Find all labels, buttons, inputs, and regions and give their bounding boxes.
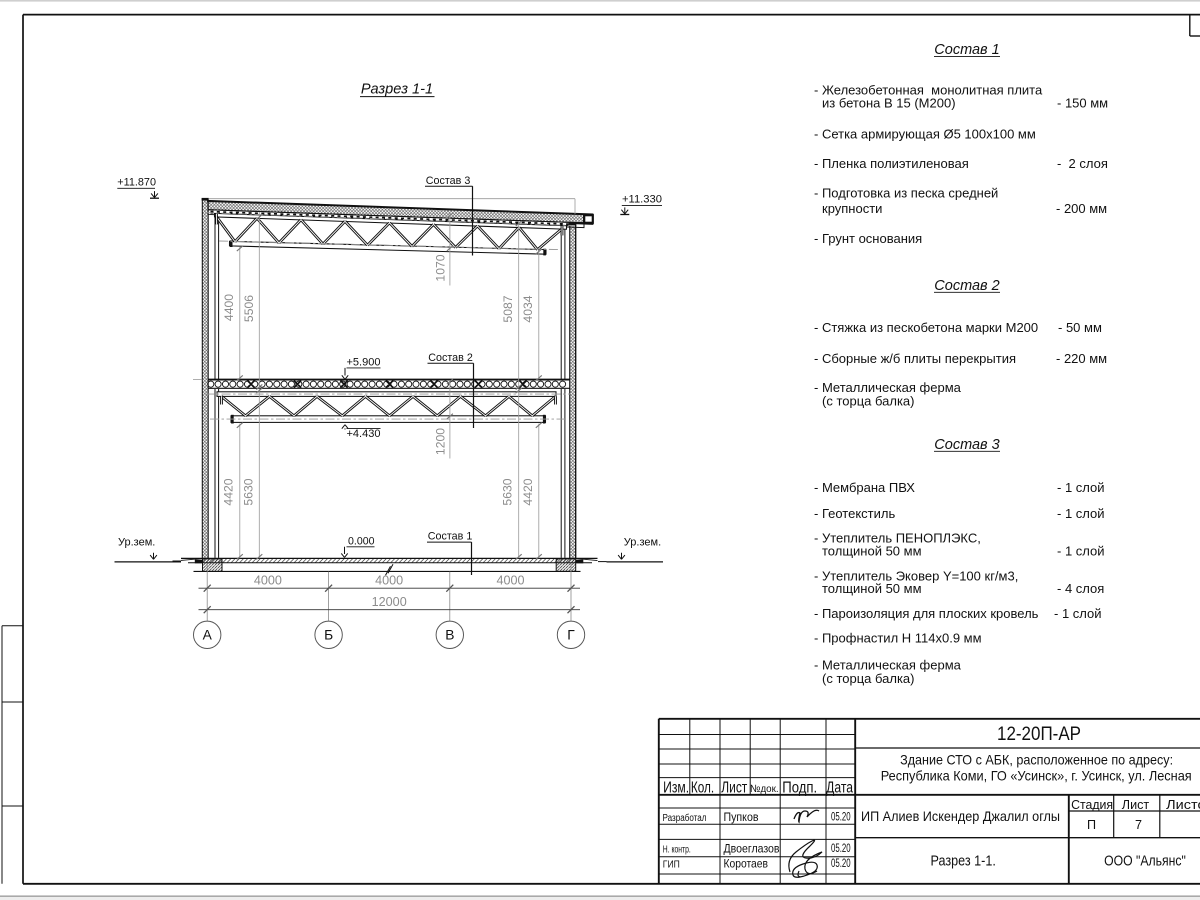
svg-text:(с торца балка): (с торца балка) — [822, 671, 915, 686]
svg-text:ГИП: ГИП — [663, 859, 680, 870]
svg-text:+5.900: +5.900 — [347, 357, 381, 369]
svg-text:4420: 4420 — [521, 478, 535, 505]
svg-text:толщиной 50 мм: толщиной 50 мм — [822, 581, 922, 596]
svg-text:Лист: Лист — [1122, 797, 1149, 812]
svg-text:В: В — [445, 627, 454, 642]
svg-text:Коротаев: Коротаев — [724, 856, 769, 870]
svg-text:Н. контр.: Н. контр. — [663, 844, 691, 855]
svg-text:12000: 12000 — [372, 595, 407, 609]
svg-text:- 1 слой: - 1 слой — [1057, 544, 1105, 559]
svg-text:Состав 1: Состав 1 — [428, 531, 473, 543]
svg-text:из бетона В 15 (М200): из бетона В 15 (М200) — [822, 96, 956, 111]
svg-text:7: 7 — [1135, 818, 1142, 832]
svg-text:5630: 5630 — [242, 478, 256, 505]
svg-text:Г: Г — [567, 627, 575, 642]
svg-text:05.20: 05.20 — [831, 856, 851, 870]
svg-text:- 220 мм: - 220 мм — [1056, 351, 1107, 366]
svg-text:1070: 1070 — [433, 254, 447, 281]
svg-text:Б: Б — [324, 627, 333, 642]
svg-text:+11.330: +11.330 — [622, 194, 662, 206]
svg-text:- 1 слой: - 1 слой — [1054, 606, 1102, 621]
svg-text:Изм.: Изм. — [663, 779, 689, 796]
svg-text:- Профнастил Н 114х0.9 мм: - Профнастил Н 114х0.9 мм — [814, 631, 982, 646]
svg-text:Ур.зем.: Ур.зем. — [624, 536, 661, 548]
svg-text:- Сборные ж/б плиты перекрытия: - Сборные ж/б плиты перекрытия — [814, 351, 1016, 366]
svg-text:Двоеглазов: Двоеглазов — [724, 841, 780, 855]
svg-text:4420: 4420 — [221, 478, 235, 505]
svg-text:4000: 4000 — [496, 573, 524, 587]
svg-text:5506: 5506 — [242, 295, 256, 322]
svg-text:0.000: 0.000 — [348, 536, 375, 548]
svg-text:Разрез 1-1: Разрез 1-1 — [361, 82, 433, 98]
svg-text:Стадия: Стадия — [1071, 797, 1113, 812]
svg-text:- Грунт основания: - Грунт основания — [814, 231, 922, 246]
svg-text:Состав 3: Состав 3 — [426, 175, 471, 187]
svg-text:- Геотекстиль: - Геотекстиль — [814, 506, 895, 521]
svg-text:№док.: №док. — [750, 783, 779, 795]
svg-text:Ур.зем.: Ур.зем. — [118, 536, 155, 548]
svg-text:Дата: Дата — [826, 779, 853, 796]
svg-text:- 2 слоя: - 2 слоя — [1057, 156, 1108, 171]
svg-text:4400: 4400 — [222, 294, 236, 321]
svg-text:- 1 слой: - 1 слой — [1057, 480, 1105, 495]
svg-text:+4.430: +4.430 — [347, 428, 381, 440]
svg-text:- 4 слоя: - 4 слоя — [1057, 581, 1104, 596]
svg-text:Здание СТО с АБК, расположенно: Здание СТО с АБК, расположенное по адрес… — [900, 752, 1173, 768]
svg-text:05.20: 05.20 — [831, 841, 851, 855]
svg-text:05.20: 05.20 — [831, 810, 851, 824]
svg-text:- 50 мм: - 50 мм — [1058, 320, 1102, 335]
svg-text:- Пленка полиэтиленовая: - Пленка полиэтиленовая — [814, 156, 969, 171]
svg-text:1200: 1200 — [433, 428, 447, 455]
svg-text:Состав 1: Состав 1 — [934, 42, 999, 58]
svg-text:4000: 4000 — [254, 573, 282, 587]
svg-text:ООО "Альянс": ООО "Альянс" — [1104, 854, 1186, 870]
svg-text:Состав 2: Состав 2 — [428, 352, 473, 364]
svg-text:- Стяжка из пескобетона марки: - Стяжка из пескобетона марки М200 — [814, 320, 1038, 335]
svg-text:Пупков: Пупков — [724, 810, 759, 824]
svg-text:Подп.: Подп. — [782, 779, 817, 796]
svg-text:Кол.: Кол. — [691, 779, 714, 796]
svg-text:Разрез 1-1.: Разрез 1-1. — [931, 854, 996, 870]
svg-text:+11.870: +11.870 — [117, 177, 156, 189]
svg-text:толщиной 50 мм: толщиной 50 мм — [822, 544, 922, 559]
svg-text:- Подготовка из песка средней: - Подготовка из песка средней — [814, 186, 998, 201]
svg-text:П: П — [1087, 818, 1096, 832]
svg-text:- 150 мм: - 150 мм — [1057, 96, 1108, 111]
svg-text:Состав 3: Состав 3 — [934, 437, 999, 453]
svg-text:- Мембрана ПВХ: - Мембрана ПВХ — [814, 480, 915, 495]
svg-text:Республика Коми, ГО «Усинск»,: Республика Коми, ГО «Усинск», г. Усинск,… — [881, 768, 1192, 784]
svg-text:Лист: Лист — [721, 779, 747, 796]
svg-text:5630: 5630 — [500, 478, 514, 505]
svg-text:Листов: Листов — [1166, 797, 1200, 812]
svg-text:5087: 5087 — [501, 295, 515, 322]
svg-text:ИП Алиев Искендер Джалил оглы: ИП Алиев Искендер Джалил оглы — [861, 808, 1060, 824]
svg-text:(с торца балка): (с торца балка) — [822, 394, 915, 409]
svg-text:- 200 мм: - 200 мм — [1056, 201, 1107, 216]
svg-text:4034: 4034 — [521, 295, 535, 322]
svg-text:А: А — [203, 627, 213, 642]
svg-text:4000: 4000 — [375, 573, 403, 587]
svg-text:- 1 слой: - 1 слой — [1057, 506, 1105, 521]
svg-text:Разработал: Разработал — [663, 812, 707, 824]
svg-text:крупности: крупности — [822, 201, 882, 216]
svg-text:- Сетка армирующая Ø5 100х100: - Сетка армирующая Ø5 100х100 мм — [814, 127, 1036, 142]
svg-text:- Пароизоляция для плоских кро: - Пароизоляция для плоских кровель — [814, 606, 1039, 621]
svg-text:Состав 2: Состав 2 — [934, 278, 999, 294]
svg-text:12-20П-АР: 12-20П-АР — [997, 723, 1081, 745]
